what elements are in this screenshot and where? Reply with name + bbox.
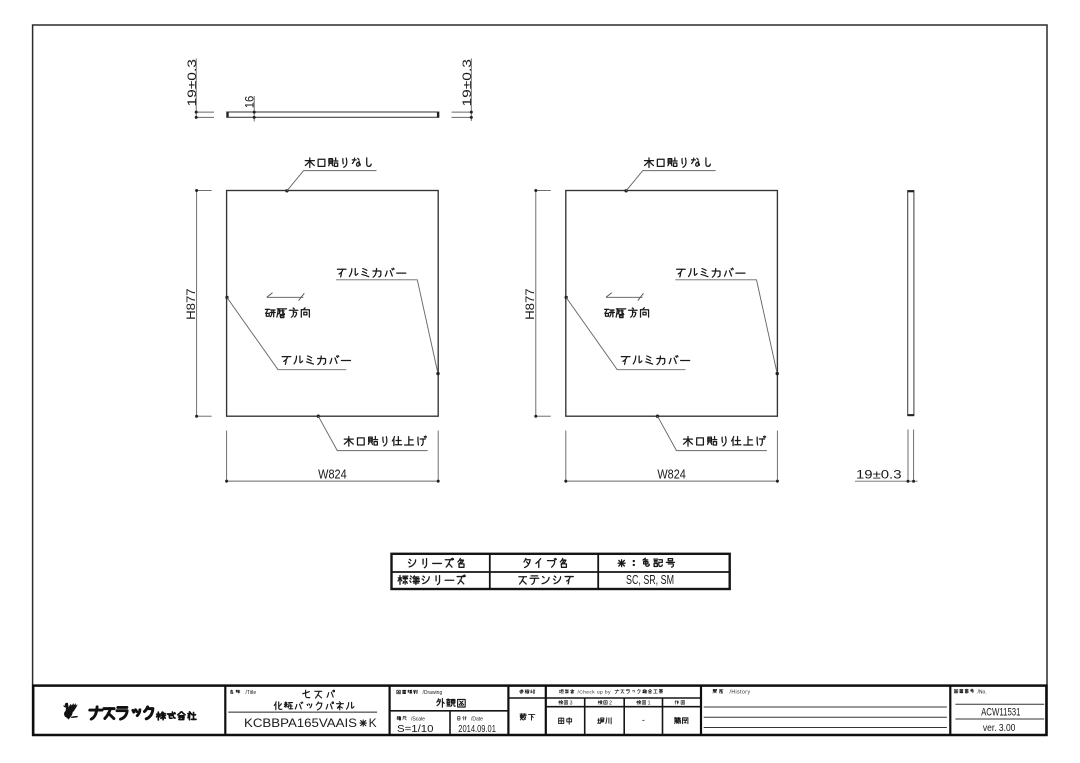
- svg-text:/Scale: /Scale: [411, 716, 425, 722]
- svg-text:/Date: /Date: [471, 716, 483, 722]
- svg-text:3: 3: [570, 701, 573, 707]
- svg-text:19±0.3: 19±0.3: [856, 467, 902, 481]
- svg-text:H877: H877: [184, 288, 198, 320]
- svg-text:/History: /History: [730, 689, 751, 695]
- svg-text:W824: W824: [657, 466, 686, 481]
- svg-text:/Drawing: /Drawing: [423, 690, 443, 696]
- svg-text:S=1/10: S=1/10: [397, 724, 434, 735]
- svg-text:/No.: /No.: [978, 689, 987, 695]
- svg-text:2014.09.01: 2014.09.01: [458, 724, 496, 735]
- svg-text:K: K: [369, 716, 377, 730]
- svg-text:H877: H877: [523, 288, 537, 320]
- svg-text:W824: W824: [318, 466, 347, 481]
- svg-text:SC, SR, SM: SC, SR, SM: [626, 572, 674, 587]
- svg-text:-: -: [642, 715, 645, 725]
- svg-text:KCBBPA165VAAIS: KCBBPA165VAAIS: [244, 716, 357, 730]
- svg-text:/Title: /Title: [246, 690, 257, 696]
- svg-text:19±0.3: 19±0.3: [460, 59, 474, 107]
- svg-text:19±0.3: 19±0.3: [185, 59, 199, 107]
- svg-text:2: 2: [609, 701, 612, 707]
- svg-text:1: 1: [648, 701, 651, 707]
- svg-text:ver. 3.00: ver. 3.00: [983, 723, 1016, 734]
- svg-text:ACW11531: ACW11531: [981, 706, 1020, 718]
- svg-text:16: 16: [243, 96, 257, 109]
- svg-text:/Check up by: /Check up by: [578, 689, 611, 695]
